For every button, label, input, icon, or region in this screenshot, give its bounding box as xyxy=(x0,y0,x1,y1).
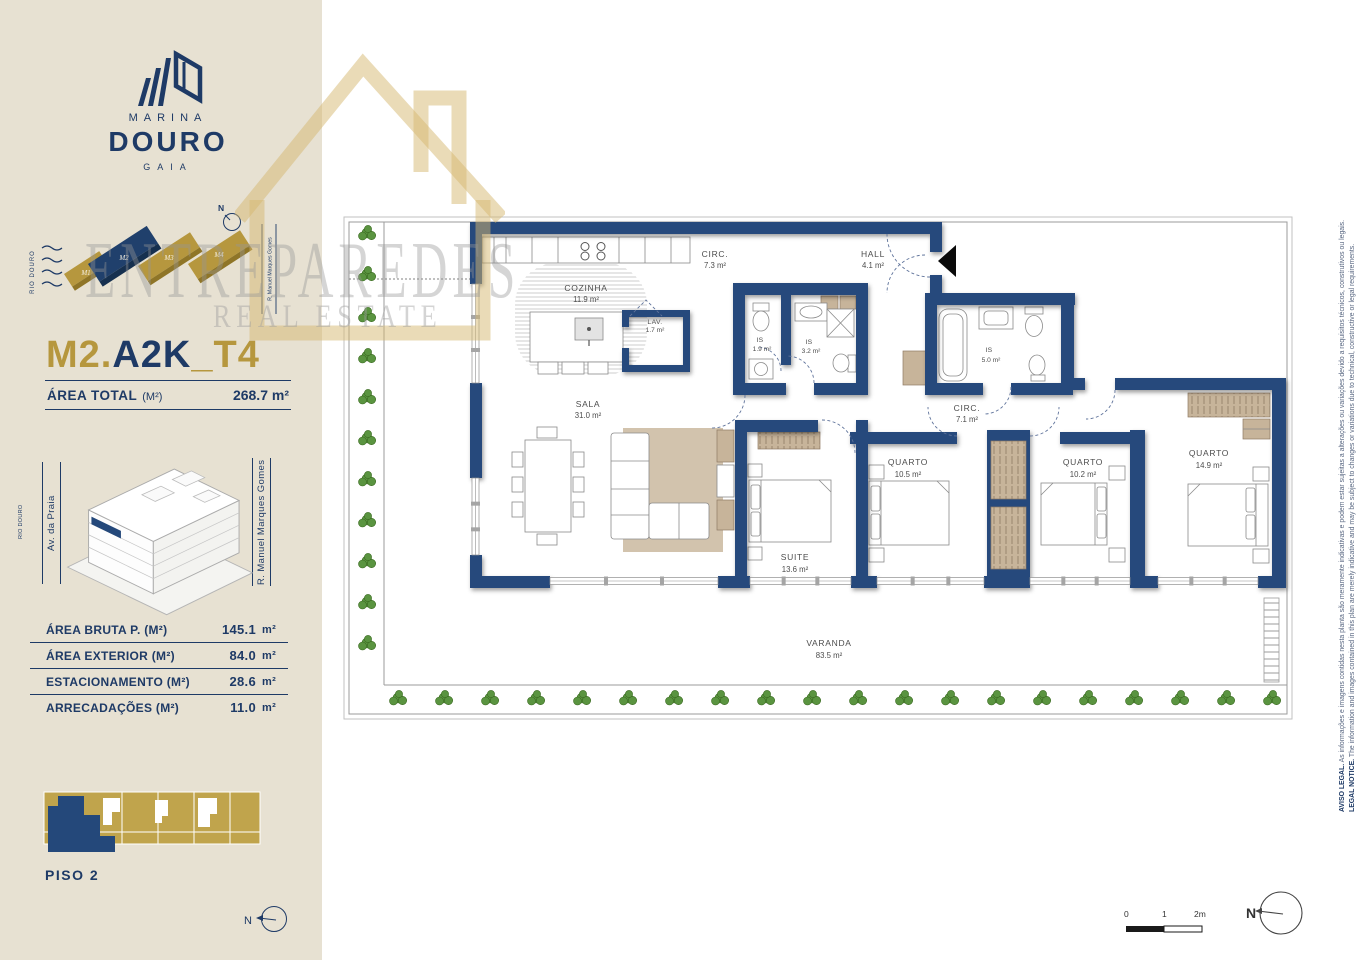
toilet-icon xyxy=(753,311,769,331)
svg-text:1.9 m²: 1.9 m² xyxy=(753,346,772,353)
unit-code-mid: A2K xyxy=(112,334,191,376)
street-label-left: Av. da Praia xyxy=(42,462,61,584)
wardrobe-icon xyxy=(758,432,820,449)
svg-text:7.3 m²: 7.3 m² xyxy=(704,261,726,270)
room-label-circ-71: CIRC. xyxy=(954,403,981,413)
room-label-is-19: IS xyxy=(756,337,763,344)
svg-text:83.5 m²: 83.5 m² xyxy=(816,651,843,660)
room-label-lav: LAV. xyxy=(647,319,662,326)
site-street-label: R. Manuel Marques Gomes xyxy=(268,237,274,301)
svg-text:5.0 m²: 5.0 m² xyxy=(982,357,1001,364)
area-row-bruta: ÁREA BRUTA P. (M²) 145.1 m² xyxy=(30,617,288,643)
svg-text:N: N xyxy=(244,915,252,927)
svg-text:0: 0 xyxy=(1124,909,1129,919)
site-street: R. Manuel Marques Gomes xyxy=(262,224,276,314)
legal-notice: AVISO LEGAL. As informações e imagens co… xyxy=(1338,140,1357,812)
area-total-label: ÁREA TOTAL xyxy=(47,388,137,403)
svg-text:N: N xyxy=(1246,905,1256,921)
site-block-m4-label: M4 xyxy=(213,251,224,259)
scale-bar: 0 1 2m xyxy=(1116,904,1226,944)
hall-closet xyxy=(903,351,927,385)
room-label-quarto-102: QUARTO xyxy=(1063,457,1103,467)
svg-text:7.1 m²: 7.1 m² xyxy=(956,415,978,424)
svg-text:N: N xyxy=(218,203,224,213)
area-total-unit: (M²) xyxy=(142,391,162,403)
unit-code-title: M2.A2K_T4 xyxy=(46,334,260,377)
floor-plan: COZINHA 11.9 m² SALA 31.0 m² LAV. 1.7 m²… xyxy=(343,215,1295,723)
site-block-m1-label: M1 xyxy=(80,269,90,277)
room-label-sala: SALA xyxy=(576,399,601,409)
room-label-quarto-105: QUARTO xyxy=(888,457,928,467)
svg-text:2m: 2m xyxy=(1194,909,1206,919)
building-render xyxy=(60,437,260,622)
svg-text:10.2 m²: 10.2 m² xyxy=(1070,470,1097,479)
bushes-left xyxy=(359,225,376,650)
floor-label: PISO 2 xyxy=(45,867,99,883)
unit-code-prefix: M2. xyxy=(46,334,112,376)
room-label-quarto-149: QUARTO xyxy=(1189,448,1229,458)
room-label-circ-73: CIRC. xyxy=(702,249,729,259)
unit-code-suffix: _T4 xyxy=(191,334,259,376)
tv-wall-unit xyxy=(717,430,734,530)
svg-text:14.9 m²: 14.9 m² xyxy=(1196,461,1223,470)
svg-text:4.1 m²: 4.1 m² xyxy=(862,261,884,270)
north-compass-icon: N xyxy=(1238,882,1318,944)
washer-icon xyxy=(749,359,773,379)
area-row-estacionamento: ESTACIONAMENTO (M²) 28.6 m² xyxy=(30,669,288,695)
svg-text:11.9 m²: 11.9 m² xyxy=(573,295,599,304)
building-river-label: RIO DOURO xyxy=(18,492,24,552)
area-total-row: ÁREA TOTAL (M²) 268.7 m² xyxy=(45,380,291,410)
svg-text:13.6 m²: 13.6 m² xyxy=(782,565,809,574)
areas-table: ÁREA BRUTA P. (M²) 145.1 m² ÁREA EXTERIO… xyxy=(30,617,288,720)
marina-douro-logo-icon xyxy=(126,48,210,112)
drain-grate xyxy=(1264,598,1279,682)
site-block-m3-label: M3 xyxy=(163,254,174,262)
sidebar-north-icon: N xyxy=(238,898,302,940)
brand-douro: DOURO xyxy=(88,126,248,158)
svg-text:31.0 m²: 31.0 m² xyxy=(575,411,602,420)
svg-text:3.2 m²: 3.2 m² xyxy=(802,348,821,355)
room-label-hall: HALL xyxy=(861,249,885,259)
brand-marina: MARINA xyxy=(88,112,248,124)
area-row-arrecadacoes: ARRECADAÇÕES (M²) 11.0 m² xyxy=(30,695,288,720)
room-label-suite: SUITE xyxy=(781,552,810,562)
floor-footprint xyxy=(42,782,267,856)
room-label-is-50: IS xyxy=(985,347,992,354)
svg-text:1.7 m²: 1.7 m² xyxy=(646,327,665,334)
brand-wordmark: MARINA DOURO GAIA xyxy=(88,112,248,172)
toilet-icon xyxy=(833,354,849,372)
page: MARINA DOURO GAIA RIO DOURO xyxy=(0,0,1357,960)
bidet-icon xyxy=(1029,355,1045,375)
area-total-value: 268.7 m² xyxy=(233,387,289,403)
toilet-icon xyxy=(1026,316,1043,337)
svg-text:1: 1 xyxy=(1162,909,1167,919)
wardrobe-icon xyxy=(1188,393,1270,417)
bushes-bottom xyxy=(390,690,1281,705)
room-label-is-32: IS xyxy=(805,339,812,346)
site-map: RIO DOURO xyxy=(22,196,292,316)
river-waves-icon xyxy=(42,246,62,286)
room-label-cozinha: COZINHA xyxy=(564,283,607,293)
site-block-m2-label: M2 xyxy=(118,254,129,262)
room-label-varanda: VARANDA xyxy=(806,638,851,648)
site-north-icon: N xyxy=(218,203,241,231)
sidebar: MARINA DOURO GAIA RIO DOURO xyxy=(0,0,322,960)
site-river-label: RIO DOURO xyxy=(30,250,36,294)
area-row-exterior: ÁREA EXTERIOR (M²) 84.0 m² xyxy=(30,643,288,669)
svg-text:10.5 m²: 10.5 m² xyxy=(895,470,922,479)
brand-gaia: GAIA xyxy=(88,162,248,172)
